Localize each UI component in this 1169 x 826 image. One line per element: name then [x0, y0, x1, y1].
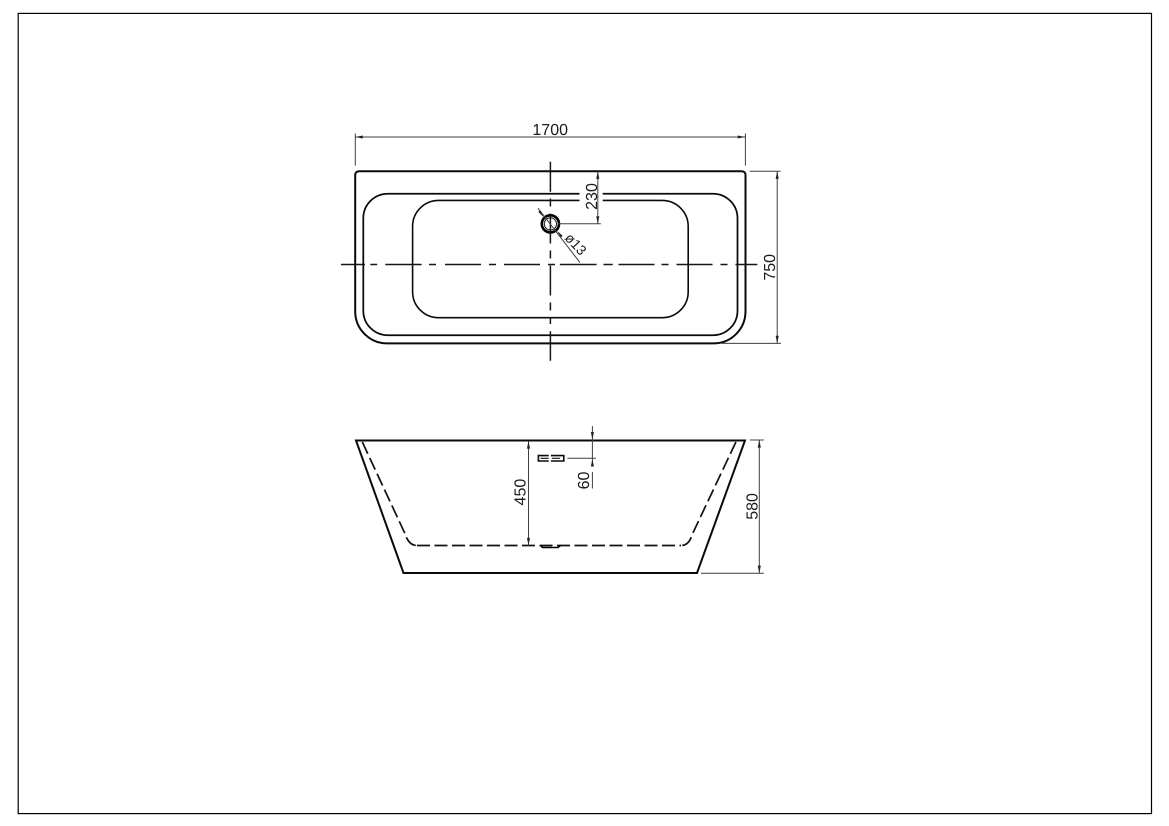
svg-text:ø13: ø13: [562, 230, 590, 259]
svg-text:1700: 1700: [532, 122, 568, 139]
svg-text:580: 580: [745, 493, 762, 520]
svg-text:60: 60: [576, 472, 593, 490]
svg-text:230: 230: [584, 183, 601, 210]
svg-text:450: 450: [513, 479, 530, 506]
svg-text:750: 750: [762, 254, 779, 281]
